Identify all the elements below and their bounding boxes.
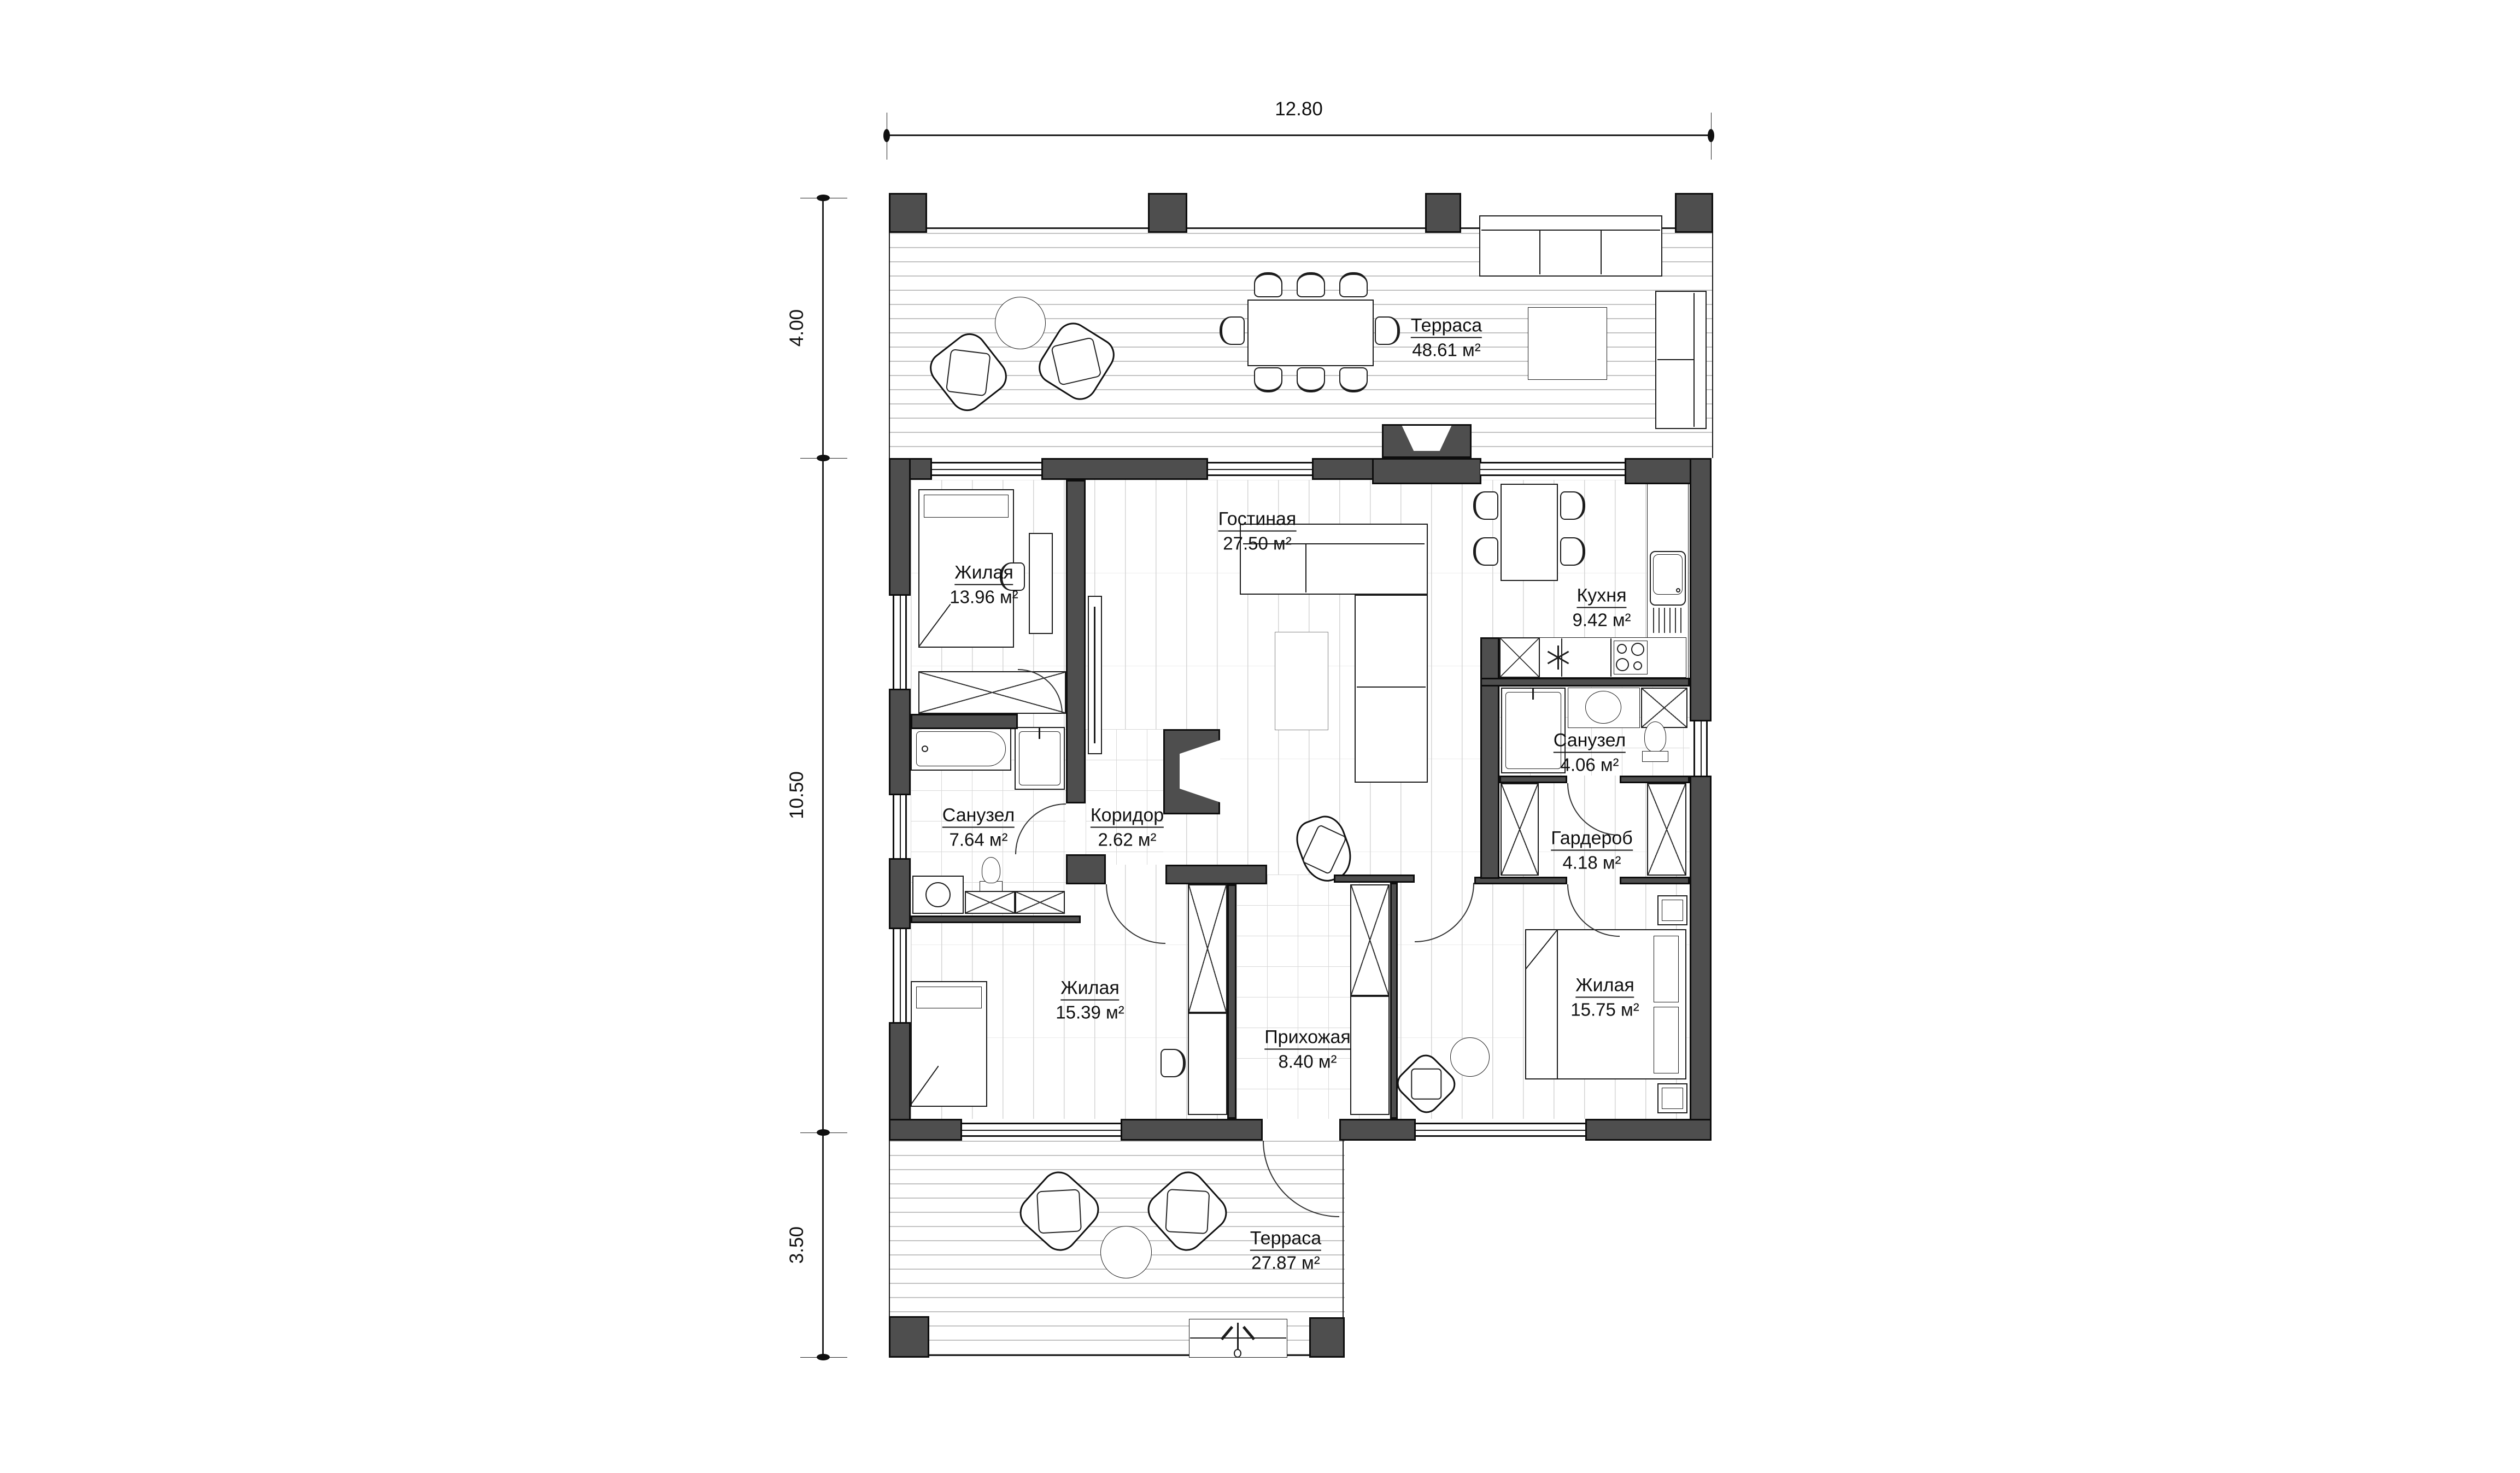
wall-left bbox=[889, 858, 911, 929]
room-name: Жилая bbox=[1575, 975, 1634, 998]
toilet-bowl bbox=[982, 857, 1000, 883]
window-glass-line bbox=[1208, 469, 1312, 470]
terrace-column bbox=[1148, 193, 1187, 233]
washing-machine-drum bbox=[925, 882, 951, 907]
dresser bbox=[1188, 1013, 1227, 1115]
room-area: 7.64 м² bbox=[942, 830, 1015, 850]
terrace-bottom-edge-right bbox=[1343, 1141, 1344, 1317]
partition bbox=[1480, 678, 1690, 686]
wall-left bbox=[889, 689, 911, 795]
window-glass-line bbox=[900, 596, 901, 689]
terrace-chair bbox=[1220, 316, 1245, 345]
window bbox=[1480, 462, 1625, 476]
terrace-chair bbox=[1339, 367, 1368, 392]
window-glass-line bbox=[1416, 1130, 1585, 1131]
lounge-seat bbox=[1037, 1189, 1082, 1234]
kitchen-sink-drainer bbox=[1653, 608, 1684, 633]
partition bbox=[1066, 480, 1086, 803]
kitchen-cabinet bbox=[1499, 637, 1540, 678]
stove-burner bbox=[1616, 658, 1629, 671]
shower-tray-inner bbox=[1019, 731, 1060, 785]
room-name: Гостиная bbox=[1218, 509, 1297, 532]
room-area: 15.39 м² bbox=[1056, 1002, 1124, 1023]
room-name: Прихожая bbox=[1264, 1027, 1351, 1050]
terrace-side-table bbox=[1100, 1226, 1152, 1278]
partition bbox=[911, 916, 1081, 923]
partition bbox=[1334, 875, 1415, 883]
room-label-wardrobe: Гардероб 4.18 м² bbox=[1551, 828, 1633, 873]
terrace-coffee-table bbox=[1528, 307, 1607, 380]
room-area: 2.62 м² bbox=[1091, 830, 1164, 850]
bed-pillow bbox=[1654, 1007, 1679, 1073]
dimension-marker bbox=[817, 195, 830, 201]
room-label-terrace-bottom: Терраса 27.87 м² bbox=[1250, 1228, 1321, 1274]
terrace-sofa2-divider bbox=[1657, 359, 1693, 360]
terrace-bottom-edge-left bbox=[889, 1141, 890, 1316]
room-area: 48.61 м² bbox=[1411, 340, 1482, 361]
desk bbox=[1029, 533, 1053, 634]
bed-blanket-fold bbox=[911, 1066, 939, 1104]
terrace-sofa-divider bbox=[1539, 230, 1540, 274]
terrace-dining-table bbox=[1247, 300, 1374, 366]
bed-pillow bbox=[1654, 936, 1679, 1002]
room-area: 4.06 м² bbox=[1554, 755, 1626, 776]
dimension-left-top-value: 4.00 bbox=[786, 309, 808, 347]
dimension-top-value: 12.80 bbox=[1275, 98, 1323, 120]
bed-pillow bbox=[924, 495, 1009, 518]
window bbox=[1208, 462, 1312, 476]
room-area: 27.87 м² bbox=[1250, 1253, 1321, 1274]
room-area: 4.18 м² bbox=[1551, 853, 1633, 873]
terrace-chair bbox=[1297, 367, 1325, 392]
kitchen-chair bbox=[1473, 537, 1498, 566]
terrace-side-table bbox=[995, 297, 1046, 349]
terrace-column bbox=[1675, 193, 1713, 233]
window bbox=[932, 462, 1041, 476]
terrace-top-rail bbox=[1187, 227, 1425, 229]
kitchen-counter-divider bbox=[1561, 638, 1562, 677]
terrace-column bbox=[1309, 1317, 1345, 1358]
terrace-chair bbox=[1254, 272, 1282, 297]
room-label-bathroom-small: Санузел 4.06 м² bbox=[1554, 730, 1626, 776]
living-sofa-divider bbox=[1305, 544, 1306, 592]
kitchen-sink-drain bbox=[1676, 588, 1680, 592]
window bbox=[893, 929, 907, 1022]
washbasin-bowl bbox=[1585, 691, 1621, 724]
living-rug bbox=[1275, 632, 1328, 730]
vanity-cabinet bbox=[1015, 891, 1065, 914]
living-sofa-chaise bbox=[1355, 595, 1428, 783]
nightstand-inner bbox=[1662, 900, 1683, 921]
window-glass-line bbox=[962, 1130, 1121, 1131]
stove-burner bbox=[1631, 643, 1644, 656]
kitchen-chair bbox=[1473, 491, 1498, 520]
room-name: Гардероб bbox=[1551, 828, 1633, 851]
terrace-column bbox=[1425, 193, 1461, 233]
wall-right bbox=[1690, 458, 1712, 721]
room-name: Жилая bbox=[1060, 978, 1120, 1001]
partition bbox=[1620, 877, 1690, 884]
stove-burner bbox=[1617, 644, 1627, 654]
dimension-marker bbox=[817, 1354, 830, 1360]
shower-tray-inner bbox=[1505, 692, 1561, 769]
room-name: Жилая bbox=[954, 562, 1013, 585]
room-name: Терраса bbox=[1411, 315, 1482, 338]
shower-faucet bbox=[1039, 727, 1040, 739]
wardrobe-cabinet bbox=[1501, 783, 1539, 876]
bathtub-faucet bbox=[922, 746, 928, 752]
dimension-marker bbox=[817, 1129, 830, 1136]
lounge-seat bbox=[946, 348, 991, 396]
window-glass-line bbox=[932, 469, 1041, 470]
terrace-sofa-divider bbox=[1601, 230, 1602, 274]
window bbox=[893, 795, 907, 858]
window bbox=[893, 596, 907, 689]
room-label-kitchen: Кухня 9.42 м² bbox=[1572, 585, 1631, 631]
room-name: Кухня bbox=[1577, 585, 1626, 608]
partition bbox=[911, 714, 1018, 729]
room-label-living: Гостиная 27.50 м² bbox=[1218, 509, 1297, 554]
room-area: 9.42 м² bbox=[1572, 610, 1631, 631]
hallway-closet bbox=[1350, 884, 1390, 996]
wall-top bbox=[1041, 458, 1208, 480]
wall-bottom bbox=[1339, 1119, 1416, 1141]
partition bbox=[1227, 884, 1236, 1119]
armchair-seat bbox=[1411, 1068, 1441, 1099]
wall-bottom bbox=[1121, 1119, 1263, 1141]
partition bbox=[1165, 865, 1267, 884]
side-table-round bbox=[1450, 1037, 1490, 1077]
wall-bottom bbox=[1585, 1119, 1712, 1141]
window-glass-line bbox=[1701, 721, 1702, 776]
dimension-left-bottom-value: 3.50 bbox=[786, 1226, 808, 1264]
room-label-terrace-top: Терраса 48.61 м² bbox=[1411, 315, 1482, 361]
armchair-seat bbox=[1302, 824, 1347, 875]
kitchen-counter-divider bbox=[1610, 638, 1611, 677]
terrace-sofa-3seat bbox=[1479, 215, 1662, 277]
room-name: Санузел bbox=[942, 805, 1015, 828]
terrace-chair bbox=[1339, 272, 1368, 297]
bathtub-inner bbox=[916, 731, 1006, 766]
bed-blanket-fold bbox=[919, 604, 951, 647]
terrace-edge-left bbox=[889, 233, 890, 458]
partition bbox=[1499, 776, 1567, 783]
dimension-left-middle-value: 10.50 bbox=[786, 771, 808, 819]
terrace-top-rail bbox=[927, 227, 1148, 229]
room-label-bedroom1: Жилая 13.96 м² bbox=[950, 562, 1018, 608]
dimension-marker bbox=[1708, 129, 1714, 142]
wall-right bbox=[1690, 776, 1712, 1141]
partition bbox=[1620, 776, 1690, 783]
terrace-column bbox=[889, 193, 927, 233]
window-glass-line bbox=[1480, 469, 1625, 470]
window-glass-line bbox=[900, 929, 901, 1022]
room-name: Санузел bbox=[1554, 730, 1626, 753]
stove-burner bbox=[1633, 661, 1642, 670]
kitchen-chair bbox=[1560, 491, 1585, 520]
bed-pillow bbox=[916, 987, 982, 1008]
partition bbox=[1480, 637, 1499, 879]
room-area: 13.96 м² bbox=[950, 587, 1018, 608]
desk-chair bbox=[1161, 1049, 1186, 1077]
dimension-line-top bbox=[887, 134, 1712, 136]
window bbox=[1693, 721, 1708, 776]
partition bbox=[1066, 854, 1106, 884]
dimension-marker bbox=[883, 129, 890, 142]
kitchen-chair bbox=[1560, 537, 1585, 566]
terrace-edge-right bbox=[1712, 233, 1713, 458]
wardrobe-cabinet bbox=[1188, 884, 1227, 1013]
partition bbox=[1390, 883, 1398, 1119]
dimension-line-left bbox=[822, 198, 824, 1358]
terrace-chair bbox=[1254, 367, 1282, 392]
shower-faucet bbox=[1532, 688, 1534, 700]
room-name: Терраса bbox=[1250, 1228, 1321, 1251]
room-label-hallway: Прихожая 8.40 м² bbox=[1264, 1027, 1351, 1072]
lounge-seat bbox=[1051, 337, 1103, 386]
terrace-sofa2-back-line bbox=[1693, 293, 1695, 427]
bathroom-cabinet bbox=[1641, 688, 1687, 728]
room-area: 8.40 м² bbox=[1264, 1052, 1351, 1072]
wall-left bbox=[889, 458, 911, 596]
toilet-tank bbox=[1642, 751, 1668, 762]
window bbox=[962, 1123, 1121, 1137]
wardrobe-cabinet bbox=[1647, 783, 1686, 876]
vanity-cabinet bbox=[965, 891, 1015, 914]
entry-arrow-base bbox=[1234, 1349, 1241, 1358]
tv-console-line bbox=[1094, 607, 1095, 743]
room-label-corridor: Коридор 2.62 м² bbox=[1091, 805, 1164, 850]
hallway-cabinet bbox=[1350, 996, 1390, 1115]
room-area: 15.75 м² bbox=[1570, 1000, 1639, 1020]
room-label-bathroom-large: Санузел 7.64 м² bbox=[942, 805, 1015, 850]
kitchen-table bbox=[1501, 484, 1558, 581]
terrace-sofa-back-line bbox=[1481, 230, 1660, 231]
living-sofa-divider bbox=[1357, 686, 1426, 688]
bed-blanket-fold bbox=[1526, 930, 1557, 969]
window-glass-line bbox=[900, 795, 901, 858]
room-label-bedroom3: Жилая 15.75 м² bbox=[1570, 975, 1639, 1020]
wall-bottom bbox=[889, 1119, 962, 1141]
room-name: Коридор bbox=[1091, 805, 1164, 828]
outdoor-fireplace-base bbox=[1372, 458, 1481, 484]
lounge-seat bbox=[1165, 1189, 1210, 1234]
nightstand-inner bbox=[1662, 1088, 1683, 1109]
room-area: 27.50 м² bbox=[1218, 533, 1297, 554]
terrace-bottom-edge bbox=[929, 1354, 1189, 1356]
terrace-column bbox=[889, 1316, 929, 1358]
terrace-chair bbox=[1297, 272, 1325, 297]
window bbox=[1416, 1123, 1585, 1137]
toilet-bowl bbox=[1644, 721, 1666, 752]
room-label-bedroom2: Жилая 15.39 м² bbox=[1056, 978, 1124, 1023]
terrace-chair bbox=[1375, 316, 1400, 345]
terrace-bottom-edge bbox=[1287, 1354, 1309, 1356]
dimension-marker bbox=[817, 455, 830, 461]
